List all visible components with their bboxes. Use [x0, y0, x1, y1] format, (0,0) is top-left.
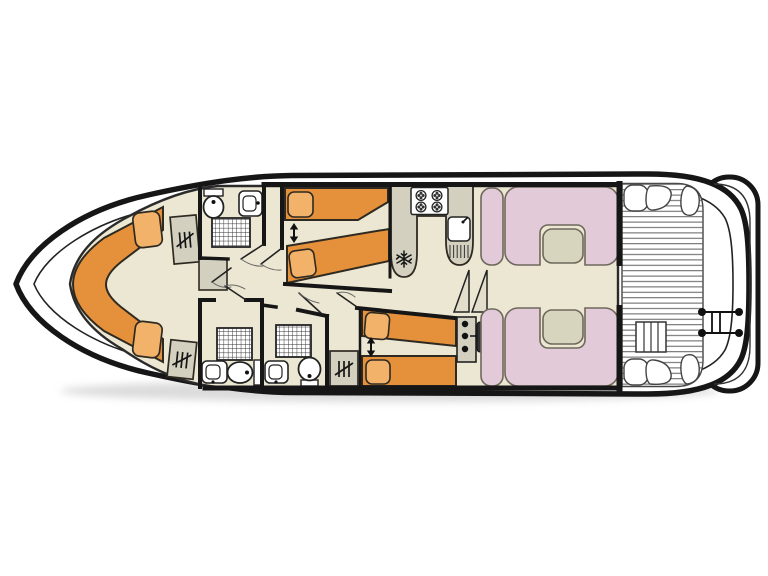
shower-icon: [217, 328, 252, 360]
bed-pillow: [364, 312, 390, 340]
floor-plan-canvas: [0, 0, 768, 576]
saloon-side-seat-top: [481, 188, 503, 265]
wardrobe-bow-bottom: [167, 340, 197, 380]
washbasin-icon: [202, 361, 227, 384]
dinette-table-bottom: [543, 310, 583, 344]
stove-icon: [411, 188, 448, 215]
saloon-side-seat-bottom: [481, 309, 503, 386]
washbasin-icon: [265, 361, 288, 384]
v-berth-pillow-bottom: [132, 321, 163, 359]
toilet-icon: [299, 358, 321, 387]
boat-floor-plan: [0, 0, 768, 576]
shower-icon: [276, 325, 311, 357]
shower-icon: [212, 218, 250, 247]
deck-ladder-icon: [636, 322, 666, 352]
deck-seat-fore-starboard: [624, 359, 671, 385]
deck-seat-fore-port: [624, 185, 671, 211]
toilet-icon: [228, 360, 263, 385]
wardrobe-bow-top: [170, 215, 200, 264]
toilet-icon: [204, 189, 224, 218]
aft-deck: [622, 184, 703, 387]
deck-seat-aft-port: [681, 186, 699, 215]
dinette-table-top: [543, 229, 583, 263]
deck-seat-aft-starboard: [681, 355, 699, 384]
v-berth-pillow-top: [132, 210, 163, 248]
bed-pillow: [288, 248, 317, 278]
bed-pillow: [366, 360, 390, 384]
washbasin-icon: [239, 191, 262, 216]
bed-pillow: [288, 192, 313, 217]
wardrobe-aft-cabin: [330, 351, 358, 386]
